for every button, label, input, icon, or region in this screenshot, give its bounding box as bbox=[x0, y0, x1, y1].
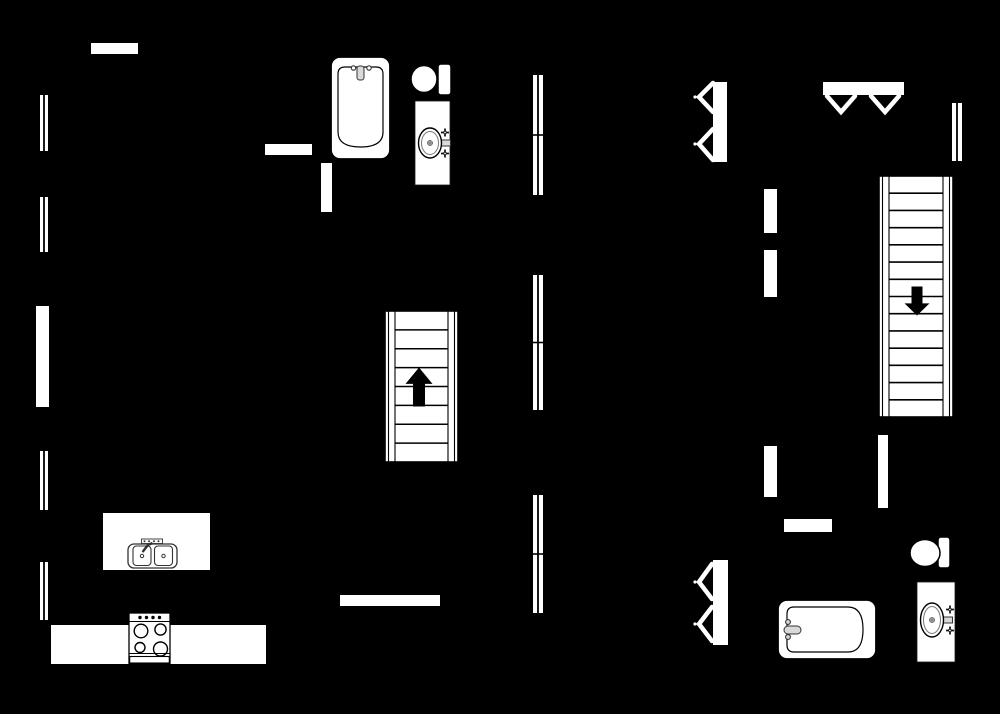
window-center-1 bbox=[533, 75, 543, 195]
bathroom-sink-upper bbox=[415, 101, 451, 185]
wall-segment-bath1-left bbox=[265, 144, 312, 155]
staircase-down bbox=[879, 176, 953, 417]
wall-segment-left-mid bbox=[36, 306, 49, 407]
wall-segment-bath1-bottom bbox=[321, 163, 332, 212]
toilet-upper bbox=[411, 64, 451, 95]
window-left-4 bbox=[40, 562, 48, 620]
staircase-up bbox=[385, 311, 458, 462]
window-right-1 bbox=[952, 103, 962, 161]
bathroom-sink-lower bbox=[917, 582, 955, 662]
window-center-3 bbox=[533, 495, 543, 613]
floor-plan bbox=[0, 0, 1000, 714]
wall-segment-bath2-top bbox=[784, 519, 832, 532]
window-left-3 bbox=[40, 451, 48, 510]
floor-plan-canvas bbox=[0, 0, 1000, 714]
window-left-1 bbox=[40, 95, 48, 151]
wall-segment-right-a bbox=[764, 189, 777, 233]
window-left-2 bbox=[40, 197, 48, 252]
wall-segment-right-c bbox=[764, 446, 777, 497]
wall-segment-center-bottom bbox=[340, 595, 440, 606]
bathtub-upper bbox=[331, 57, 390, 159]
toilet-lower bbox=[910, 537, 950, 568]
wall-segment-right-b bbox=[764, 250, 777, 297]
wall-opening-top-left bbox=[91, 43, 138, 54]
kitchen-sink bbox=[128, 539, 177, 568]
stove bbox=[129, 613, 170, 664]
bifold-closet-door-upper bbox=[693, 82, 727, 162]
double-folding-door-top bbox=[823, 82, 904, 112]
bifold-closet-door-lower bbox=[693, 560, 728, 645]
wall-segment-stair-bottom bbox=[878, 435, 888, 508]
window-center-2 bbox=[533, 275, 543, 410]
bathtub-lower bbox=[778, 600, 876, 659]
